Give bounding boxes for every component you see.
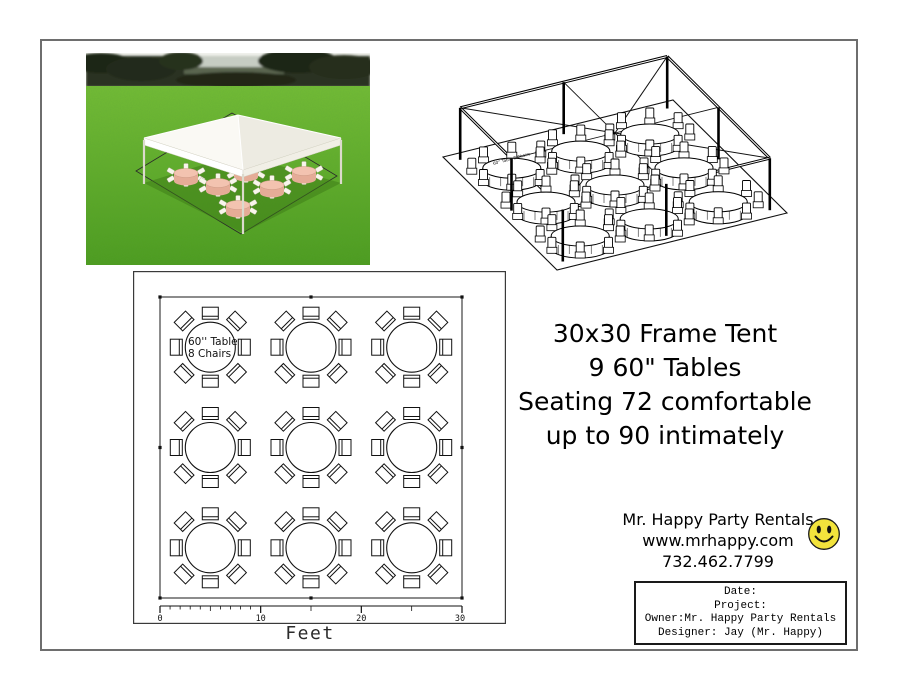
chair-3d bbox=[679, 142, 689, 158]
chair-seat bbox=[535, 157, 545, 163]
photo-table-top bbox=[206, 179, 230, 188]
chair-outline bbox=[202, 408, 218, 420]
summary-line-1: 30x30 Frame Tent bbox=[430, 317, 900, 351]
chair bbox=[339, 540, 351, 556]
company-name: Mr. Happy Party Rentals bbox=[593, 509, 843, 530]
chair-outline bbox=[271, 339, 283, 355]
chair-3d bbox=[581, 192, 591, 208]
chair-seat bbox=[685, 134, 695, 140]
chair bbox=[202, 375, 218, 387]
chair-3d bbox=[713, 176, 723, 192]
table-circle bbox=[286, 322, 336, 372]
chair-seat bbox=[479, 157, 489, 163]
chair-3d bbox=[535, 226, 545, 242]
chair-outline bbox=[303, 307, 319, 319]
scale-tick-0: 0 bbox=[157, 614, 162, 624]
chair-seat bbox=[479, 180, 489, 186]
chair bbox=[303, 375, 319, 387]
chair-outline bbox=[170, 540, 182, 556]
chair-seat bbox=[685, 191, 695, 197]
chair bbox=[170, 339, 182, 355]
chair-outline bbox=[202, 576, 218, 588]
chair-3d bbox=[713, 208, 723, 224]
chair-seat bbox=[513, 213, 523, 219]
chair-outline bbox=[404, 307, 420, 319]
chair-3d bbox=[673, 220, 683, 236]
chair-3d bbox=[644, 193, 654, 209]
table-label-line2: 8 Chairs bbox=[188, 348, 231, 360]
chair-seat bbox=[651, 157, 661, 163]
chair-outline bbox=[339, 440, 351, 456]
chair-outline bbox=[170, 440, 182, 456]
chair-3d bbox=[684, 209, 694, 225]
chair-3d bbox=[638, 164, 648, 180]
chair-seat bbox=[616, 151, 626, 157]
date-field: Date: bbox=[636, 586, 845, 600]
table-circle bbox=[286, 523, 336, 573]
chair-3d bbox=[501, 192, 511, 208]
designer-field: Designer: Jay (Mr. Happy) bbox=[636, 627, 845, 641]
table-3d bbox=[535, 210, 625, 258]
chair-3d bbox=[610, 159, 620, 175]
chair-seat bbox=[650, 185, 660, 191]
chair-3d bbox=[719, 158, 729, 174]
chair-outline bbox=[170, 339, 182, 355]
chair bbox=[238, 540, 250, 556]
table-circle bbox=[387, 523, 437, 573]
chair bbox=[202, 307, 218, 319]
chair bbox=[339, 339, 351, 355]
chair-seat bbox=[535, 236, 545, 242]
chair-seat bbox=[679, 152, 689, 158]
chair-seat bbox=[513, 191, 523, 197]
chair-3d bbox=[673, 113, 683, 129]
chair-seat bbox=[467, 168, 477, 174]
chair-3d bbox=[707, 147, 717, 163]
leg-marker bbox=[309, 596, 312, 599]
chair-outline bbox=[271, 440, 283, 456]
chair bbox=[170, 540, 182, 556]
chair-seat bbox=[684, 219, 694, 225]
chair bbox=[372, 540, 384, 556]
chair-outline bbox=[404, 508, 420, 520]
chair-outline bbox=[372, 540, 384, 556]
chair-outline bbox=[303, 508, 319, 520]
chair-outline bbox=[238, 540, 250, 556]
chair-seat bbox=[547, 168, 557, 174]
chair-outline bbox=[202, 508, 218, 520]
chair-3d bbox=[547, 158, 557, 174]
chair bbox=[303, 576, 319, 588]
chair-outline bbox=[404, 476, 420, 488]
chair-3d bbox=[548, 130, 558, 146]
chair bbox=[372, 440, 384, 456]
chair bbox=[271, 440, 283, 456]
leg-marker bbox=[309, 295, 312, 298]
project-field: Project: bbox=[636, 600, 845, 614]
chair-outline bbox=[440, 540, 452, 556]
title-block: Date: Project: Owner:Mr. Happy Party Ren… bbox=[634, 581, 847, 645]
chair bbox=[404, 508, 420, 520]
chair-seat bbox=[719, 168, 729, 174]
chair-3d bbox=[513, 181, 523, 197]
chair-outline bbox=[372, 339, 384, 355]
chair bbox=[404, 576, 420, 588]
chair-3d bbox=[604, 130, 614, 146]
smiley-left-eye bbox=[817, 526, 821, 534]
table-group bbox=[372, 508, 452, 588]
chair-seat bbox=[616, 208, 626, 214]
chair-seat bbox=[581, 202, 591, 208]
leg-marker bbox=[460, 596, 463, 599]
chair-seat bbox=[644, 203, 654, 209]
chair bbox=[303, 508, 319, 520]
chair-seat bbox=[610, 169, 620, 175]
chair-3d bbox=[541, 176, 551, 192]
chair-seat bbox=[673, 230, 683, 236]
chair-3d bbox=[650, 175, 660, 191]
chair-seat bbox=[713, 186, 723, 192]
chair-outline bbox=[303, 576, 319, 588]
chair-3d bbox=[575, 242, 585, 258]
chair-3d bbox=[651, 147, 661, 163]
chair-seat bbox=[707, 157, 717, 163]
chair-outline bbox=[372, 440, 384, 456]
photo-table-top bbox=[292, 167, 316, 176]
chair-outline bbox=[271, 540, 283, 556]
chair-3d bbox=[617, 113, 627, 129]
smiley-head bbox=[809, 519, 840, 550]
chair-3d bbox=[547, 237, 557, 253]
chair-seat bbox=[604, 247, 614, 253]
chair-3d bbox=[685, 181, 695, 197]
chair-3d bbox=[742, 181, 752, 197]
table-group bbox=[170, 408, 250, 488]
chair-outline bbox=[238, 339, 250, 355]
leg-marker bbox=[460, 295, 463, 298]
leg-marker bbox=[158, 446, 161, 449]
chair-seat bbox=[569, 191, 579, 197]
tree-line bbox=[86, 53, 370, 88]
table-circle bbox=[185, 523, 235, 573]
chair bbox=[202, 508, 218, 520]
chair-3d bbox=[645, 108, 655, 124]
chair bbox=[303, 476, 319, 488]
chair-outline bbox=[202, 375, 218, 387]
chair bbox=[303, 307, 319, 319]
chair bbox=[202, 576, 218, 588]
chair bbox=[404, 408, 420, 420]
chair-seat bbox=[617, 123, 627, 129]
table-label-line1: 60'' Table bbox=[188, 336, 238, 348]
table-group bbox=[271, 307, 351, 387]
chair-seat bbox=[673, 123, 683, 129]
chair bbox=[170, 440, 182, 456]
chair bbox=[271, 339, 283, 355]
table-circle bbox=[286, 423, 336, 473]
chair-seat bbox=[547, 247, 557, 253]
chair-3d bbox=[576, 125, 586, 141]
chair bbox=[404, 476, 420, 488]
leg-marker bbox=[158, 295, 161, 298]
chair-seat bbox=[615, 236, 625, 242]
chair-seat bbox=[644, 235, 654, 241]
table-group bbox=[271, 408, 351, 488]
chair-seat bbox=[575, 220, 585, 226]
chair-outline bbox=[202, 307, 218, 319]
table-circle bbox=[185, 423, 235, 473]
scale-tick-10: 10 bbox=[256, 614, 266, 624]
chair-outline bbox=[238, 440, 250, 456]
chair-outline bbox=[303, 408, 319, 420]
chair-outline bbox=[404, 375, 420, 387]
chair bbox=[440, 540, 452, 556]
tent-photo-render bbox=[86, 53, 370, 265]
chair-3d bbox=[616, 198, 626, 214]
chair-3d bbox=[615, 226, 625, 242]
chair-3d bbox=[467, 158, 477, 174]
owner-field: Owner:Mr. Happy Party Rentals bbox=[636, 613, 845, 627]
phone-number: 732.462.7799 bbox=[593, 551, 843, 572]
chair bbox=[404, 307, 420, 319]
chair-3d bbox=[616, 141, 626, 157]
scale-unit-label: Feet bbox=[285, 623, 334, 644]
chair-3d bbox=[569, 181, 579, 197]
chair bbox=[303, 408, 319, 420]
smiley-face-icon bbox=[807, 517, 841, 551]
chair-outline bbox=[202, 476, 218, 488]
chair-seat bbox=[753, 202, 763, 208]
chair bbox=[238, 339, 250, 355]
chair-seat bbox=[582, 174, 592, 180]
chair-seat bbox=[638, 174, 648, 180]
chair bbox=[202, 476, 218, 488]
chair-seat bbox=[547, 225, 557, 231]
scale-tick-20: 20 bbox=[356, 614, 366, 624]
chair-seat bbox=[576, 135, 586, 141]
chair-seat bbox=[548, 140, 558, 146]
chair-3d bbox=[604, 215, 614, 231]
photo-table-top bbox=[174, 169, 198, 178]
scale-tick-30: 30 bbox=[455, 614, 465, 624]
table-group bbox=[170, 508, 250, 588]
summary-line-2: 9 60" Tables bbox=[430, 351, 900, 385]
chair-3d bbox=[547, 215, 557, 231]
chair-seat bbox=[541, 186, 551, 192]
chair bbox=[404, 375, 420, 387]
chair-3d bbox=[535, 147, 545, 163]
photo-table-top bbox=[226, 201, 250, 210]
chair-outline bbox=[303, 375, 319, 387]
chair-3d bbox=[575, 210, 585, 226]
chair-outline bbox=[404, 576, 420, 588]
chair-seat bbox=[575, 252, 585, 258]
table-group bbox=[271, 508, 351, 588]
chair-seat bbox=[645, 118, 655, 124]
contact-block: Mr. Happy Party Rentals www.mrhappy.com … bbox=[593, 509, 843, 572]
chair-seat bbox=[742, 191, 752, 197]
chair-3d bbox=[479, 170, 489, 186]
tent-wireframe-drawing: 60'' Table 8 Chairs bbox=[432, 50, 802, 285]
chair-seat bbox=[673, 208, 683, 214]
chair-3d bbox=[604, 237, 614, 253]
chair-seat bbox=[604, 140, 614, 146]
chair-3d bbox=[513, 203, 523, 219]
website: www.mrhappy.com bbox=[593, 530, 843, 551]
chair-3d bbox=[685, 124, 695, 140]
chair bbox=[238, 440, 250, 456]
summary-line-4: up to 90 intimately bbox=[430, 419, 900, 453]
chair-outline bbox=[339, 339, 351, 355]
chair-3d bbox=[673, 198, 683, 214]
chair-3d bbox=[753, 192, 763, 208]
chair-outline bbox=[339, 540, 351, 556]
chair bbox=[372, 339, 384, 355]
chair-seat bbox=[604, 225, 614, 231]
smiley-right-eye bbox=[827, 526, 831, 534]
chair-outline bbox=[404, 408, 420, 420]
chair bbox=[202, 408, 218, 420]
chair-3d bbox=[479, 147, 489, 163]
leg-marker bbox=[158, 596, 161, 599]
photo-table-top bbox=[260, 181, 284, 190]
chair-3d bbox=[582, 164, 592, 180]
chair-3d bbox=[742, 203, 752, 219]
summary-line-3: Seating 72 comfortable bbox=[430, 385, 900, 419]
tent-summary: 30x30 Frame Tent 9 60" Tables Seating 72… bbox=[430, 317, 900, 453]
chair bbox=[271, 540, 283, 556]
chair-3d bbox=[644, 225, 654, 241]
chair-outline bbox=[303, 476, 319, 488]
chair-seat bbox=[713, 218, 723, 224]
chair-seat bbox=[501, 202, 511, 208]
chair-seat bbox=[742, 213, 752, 219]
chair bbox=[339, 440, 351, 456]
